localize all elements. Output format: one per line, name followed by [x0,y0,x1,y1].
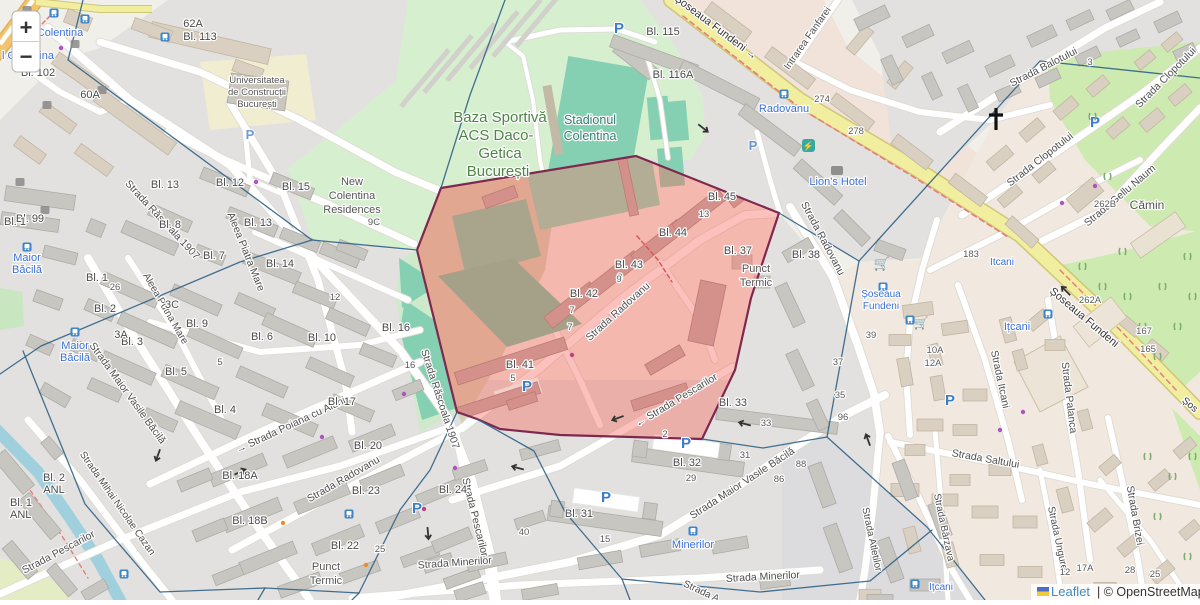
svg-text:33: 33 [761,418,772,429]
svg-text:31: 31 [740,450,751,461]
svg-text:P: P [749,138,758,153]
svg-text:New: New [341,176,363,188]
svg-text:28: 28 [1125,565,1136,576]
svg-text:Colentina: Colentina [564,129,617,143]
svg-text:Termic: Termic [310,575,343,587]
svg-text:🛒: 🛒 [914,316,929,330]
svg-text:Colentina: Colentina [329,190,376,202]
svg-text:17A: 17A [1077,563,1095,574]
svg-text:Băcilă: Băcilă [12,264,43,276]
svg-text:10A: 10A [927,345,945,356]
svg-text:Bl. 42: Bl. 42 [570,288,598,300]
svg-text:ACS Daco-: ACS Daco- [458,127,533,144]
svg-text:Bl. 45: Bl. 45 [708,191,736,203]
svg-text:Residences: Residences [323,204,381,216]
svg-text:Bl. 10: Bl. 10 [308,332,336,344]
svg-text:Bl. 4: Bl. 4 [214,404,236,416]
svg-text:P: P [945,392,955,409]
svg-text:Bl. 1: Bl. 1 [4,216,26,228]
svg-text:Bl. 32: Bl. 32 [673,457,701,469]
svg-text:Bl. 41: Bl. 41 [506,359,534,371]
svg-text:Bl. 44: Bl. 44 [659,227,687,239]
svg-text:Bl. 2: Bl. 2 [94,303,116,315]
svg-text:Bl. 43: Bl. 43 [615,259,643,271]
svg-text:de Construcții: de Construcții [228,87,286,98]
svg-text:13: 13 [699,209,710,220]
svg-text:Bl. 15: Bl. 15 [282,181,310,193]
svg-text:12A: 12A [925,358,943,369]
svg-text:Bl. 20: Bl. 20 [354,440,382,452]
svg-text:Bl. 6: Bl. 6 [251,331,273,343]
svg-text:București: București [467,163,530,180]
svg-text:P: P [522,378,532,395]
svg-text:Bl. 13: Bl. 13 [151,179,179,191]
svg-text:Șoseaua: Șoseaua [861,289,901,300]
svg-text:Universitatea: Universitatea [229,75,285,86]
svg-text:26: 26 [110,282,121,293]
svg-text:Bl. 22: Bl. 22 [331,540,359,552]
svg-text:Lion's Hotel: Lion's Hotel [809,176,866,188]
svg-text:60A: 60A [80,89,100,101]
svg-text:Bl. 33: Bl. 33 [719,397,747,409]
svg-text:Bl. 5: Bl. 5 [165,366,187,378]
svg-text:Bl. 18A: Bl. 18A [222,470,258,482]
svg-text:5: 5 [510,373,515,384]
svg-text:| © OpenStreetMap: | © OpenStreetMap [1097,585,1200,599]
svg-text:Radovanu: Radovanu [759,103,809,115]
svg-text:Bl. 13: Bl. 13 [244,217,272,229]
svg-text:P: P [601,489,611,506]
svg-text:Bl. 9: Bl. 9 [186,318,208,330]
svg-text:12: 12 [1060,567,1071,578]
svg-text:Bl. 16: Bl. 16 [382,322,410,334]
svg-text:P: P [246,127,255,142]
svg-text:ANL: ANL [10,509,31,521]
svg-text:Bl. 24: Bl. 24 [439,484,467,496]
svg-text:3A: 3A [114,329,128,341]
svg-text:Bl. 31: Bl. 31 [565,508,593,520]
svg-text:Bl. 12: Bl. 12 [216,177,244,189]
svg-text:5: 5 [217,357,222,368]
svg-text:25: 25 [375,544,386,555]
svg-text:25: 25 [1150,569,1161,580]
svg-text:Bl. 17: Bl. 17 [328,396,356,408]
svg-text:P: P [681,435,691,452]
svg-text:P: P [614,20,624,37]
svg-text:9: 9 [616,274,621,285]
svg-text:+: + [20,15,33,40]
svg-text:Termic: Termic [740,277,773,289]
svg-text:ANL: ANL [43,484,64,496]
svg-text:40: 40 [519,527,530,538]
svg-text:Getica: Getica [478,145,522,162]
svg-text:12: 12 [330,292,341,303]
svg-text:35: 35 [835,390,846,401]
svg-text:−: − [20,44,33,69]
svg-text:🛒: 🛒 [874,256,890,271]
svg-text:Ițcani: Ițcani [1004,321,1030,333]
svg-text:Bl. 7: Bl. 7 [203,250,225,262]
svg-text:88: 88 [796,459,807,470]
svg-text:Bl. 23: Bl. 23 [352,485,380,497]
svg-text:37: 37 [833,357,844,368]
svg-text:3C: 3C [165,299,179,311]
svg-text:Bl. 115: Bl. 115 [646,26,679,38]
svg-text:278: 278 [848,126,864,137]
svg-text:262B: 262B [1094,199,1116,210]
svg-text:Maior: Maior [13,252,41,264]
svg-text:Fundeni: Fundeni [863,301,899,312]
svg-text:Maior: Maior [61,340,89,352]
svg-text:Leaflet: Leaflet [1051,584,1090,599]
svg-text:Cămin: Cămin [1130,198,1165,212]
svg-text:Bl. 113: Bl. 113 [183,31,216,43]
svg-text:Baza Sportivă: Baza Sportivă [453,109,547,126]
svg-text:274: 274 [814,94,830,105]
svg-text:Bl. 37: Bl. 37 [724,245,752,257]
svg-text:15: 15 [600,534,611,545]
svg-text:P: P [412,500,422,517]
svg-text:Ițcani: Ițcani [929,582,953,593]
svg-text:9C: 9C [368,217,380,228]
svg-text:⚡: ⚡ [803,140,814,152]
svg-text:București: București [237,99,277,110]
svg-text:Bl. 116A: Bl. 116A [653,69,694,81]
svg-text:7: 7 [569,305,574,316]
svg-text:Bl. 8: Bl. 8 [159,219,181,231]
svg-text:262A: 262A [1079,295,1102,306]
svg-text:Punct: Punct [742,263,770,275]
svg-text:16: 16 [405,360,416,371]
svg-text:183: 183 [963,249,979,260]
svg-text:7: 7 [567,322,572,333]
svg-text:Stadionul: Stadionul [564,113,616,127]
svg-text:29: 29 [686,473,697,484]
svg-text:Bl. 14: Bl. 14 [266,258,294,270]
svg-text:Băcilă: Băcilă [60,352,91,364]
svg-text:165: 165 [1140,344,1156,355]
svg-text:Colentina: Colentina [37,27,84,39]
svg-text:Bl. 18B: Bl. 18B [232,515,267,527]
svg-text:167: 167 [1136,326,1152,337]
svg-text:62A: 62A [183,18,203,30]
svg-text:Punct: Punct [312,561,340,573]
svg-text:86: 86 [774,474,785,485]
svg-text:Minerilor: Minerilor [672,539,715,551]
svg-text:Bl. 1: Bl. 1 [86,272,108,284]
svg-text:Bl. 1: Bl. 1 [10,497,32,509]
svg-text:3: 3 [1087,57,1092,68]
svg-text:Bl. 2: Bl. 2 [43,472,65,484]
svg-text:2: 2 [662,429,667,440]
svg-text:Itcani: Itcani [990,257,1014,268]
svg-text:Bl. 38: Bl. 38 [792,249,820,261]
svg-text:96: 96 [838,412,849,423]
svg-text:39: 39 [866,330,877,341]
